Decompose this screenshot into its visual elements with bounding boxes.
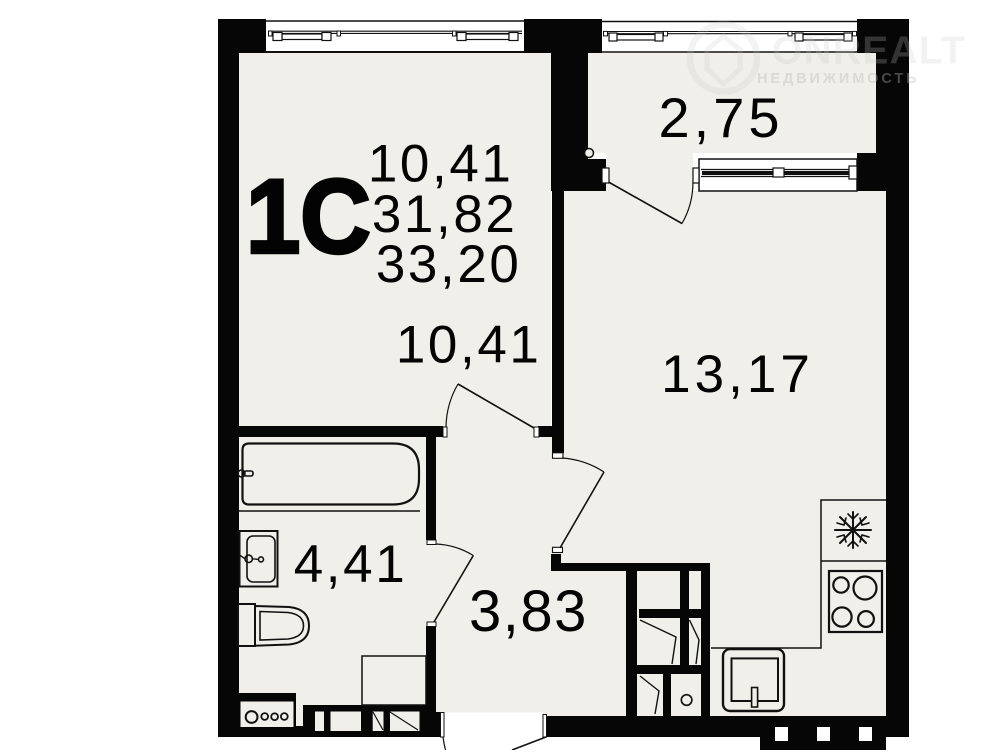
svg-text:2,75: 2,75 bbox=[659, 86, 784, 149]
svg-text:4,41: 4,41 bbox=[294, 535, 408, 594]
svg-text:НЕДВИЖИМОСТЬ: НЕДВИЖИМОСТЬ bbox=[757, 71, 919, 87]
svg-text:33,20: 33,20 bbox=[376, 235, 522, 294]
svg-text:1С: 1С bbox=[246, 158, 371, 275]
svg-text:ONREALT: ONREALT bbox=[772, 30, 966, 73]
svg-text:10,41: 10,41 bbox=[396, 315, 542, 374]
svg-text:13,17: 13,17 bbox=[661, 345, 814, 404]
svg-text:3,83: 3,83 bbox=[469, 579, 588, 644]
